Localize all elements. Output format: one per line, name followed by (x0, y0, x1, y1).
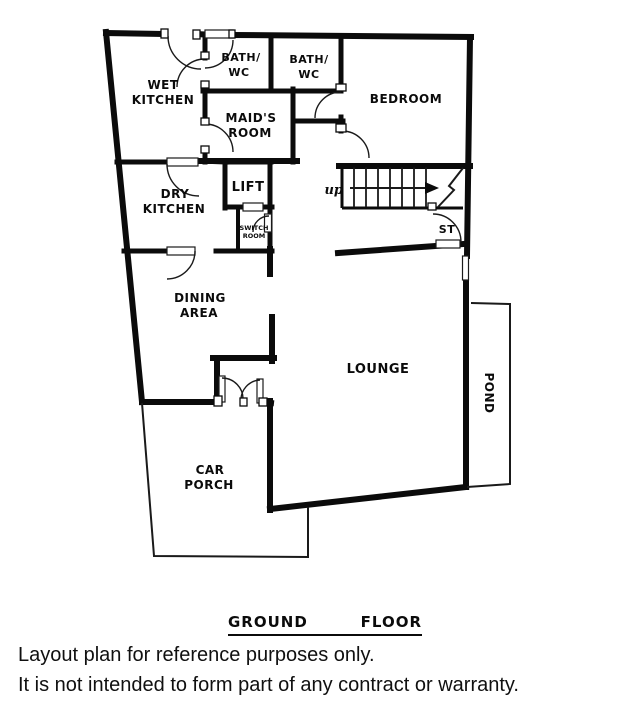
floor-plan-drawing: WET KITCHEN BATH/ WC BATH/ WC BEDROOM MA… (0, 0, 626, 605)
floor-plan-page: WET KITCHEN BATH/ WC BATH/ WC BEDROOM MA… (0, 0, 626, 717)
lift-label: LIFT (232, 180, 265, 195)
door-posts (161, 29, 436, 406)
dry-kitchen-bottom-door-leaf (167, 247, 195, 255)
maids-room-label: MAID'S (226, 111, 277, 125)
lounge-south-wall (270, 487, 466, 509)
wet-kitchen-label-2: KITCHEN (132, 93, 195, 107)
stair-break-line (438, 168, 463, 207)
store-label: ST (439, 223, 455, 236)
dry-kitchen-label: DRY (161, 187, 190, 201)
wet-kitchen-top-door-arc (168, 36, 201, 69)
stair-arrow-head (425, 182, 439, 194)
bath-wc-2-label-2: WC (298, 68, 319, 81)
bedroom-door-arc (342, 131, 369, 158)
stairs-up-label: up (324, 183, 343, 198)
interior-walls (117, 36, 470, 510)
lounge-label: LOUNGE (347, 362, 410, 377)
plan-title-word1: GROUND (228, 613, 308, 631)
dining-area-label: DINING (174, 291, 226, 305)
lift-door-leaf (243, 203, 263, 211)
bedroom-label: BEDROOM (370, 92, 442, 106)
store-door-leaf (436, 240, 460, 248)
switch-room-label-2: ROOM (243, 232, 266, 240)
switch-room-label: SWITCH (240, 224, 269, 232)
entrance-wall (142, 402, 271, 403)
maids-room-label-2: ROOM (228, 126, 272, 140)
plan-title: GROUND FLOOR (228, 613, 422, 636)
bath2-door-arc (315, 92, 341, 118)
bath-wc-2-label: BATH/ (289, 53, 329, 66)
pond-label: POND (482, 373, 496, 414)
disclaimer-text: Layout plan for reference purposes only.… (18, 640, 519, 700)
bath-wc-1-label: BATH/ (221, 51, 261, 64)
east-window (463, 256, 469, 280)
west-wall (106, 32, 142, 402)
dining-area-label-2: AREA (180, 306, 218, 320)
dry-kitchen-label-2: KITCHEN (143, 202, 206, 216)
plan-title-word2: FLOOR (361, 613, 422, 631)
staircase (342, 166, 463, 208)
wet-kitchen-label: WET (147, 78, 178, 92)
door-leaves (167, 30, 460, 403)
car-porch-label: CAR (196, 463, 225, 477)
car-porch-label-2: PORCH (184, 478, 234, 492)
bath-wc-1-label-2: WC (228, 66, 249, 79)
dry-kitchen-top-door-leaf (167, 158, 198, 166)
disclaimer-line-2: It is not intended to form part of any c… (18, 670, 519, 700)
disclaimer-line-1: Layout plan for reference purposes only. (18, 640, 519, 670)
